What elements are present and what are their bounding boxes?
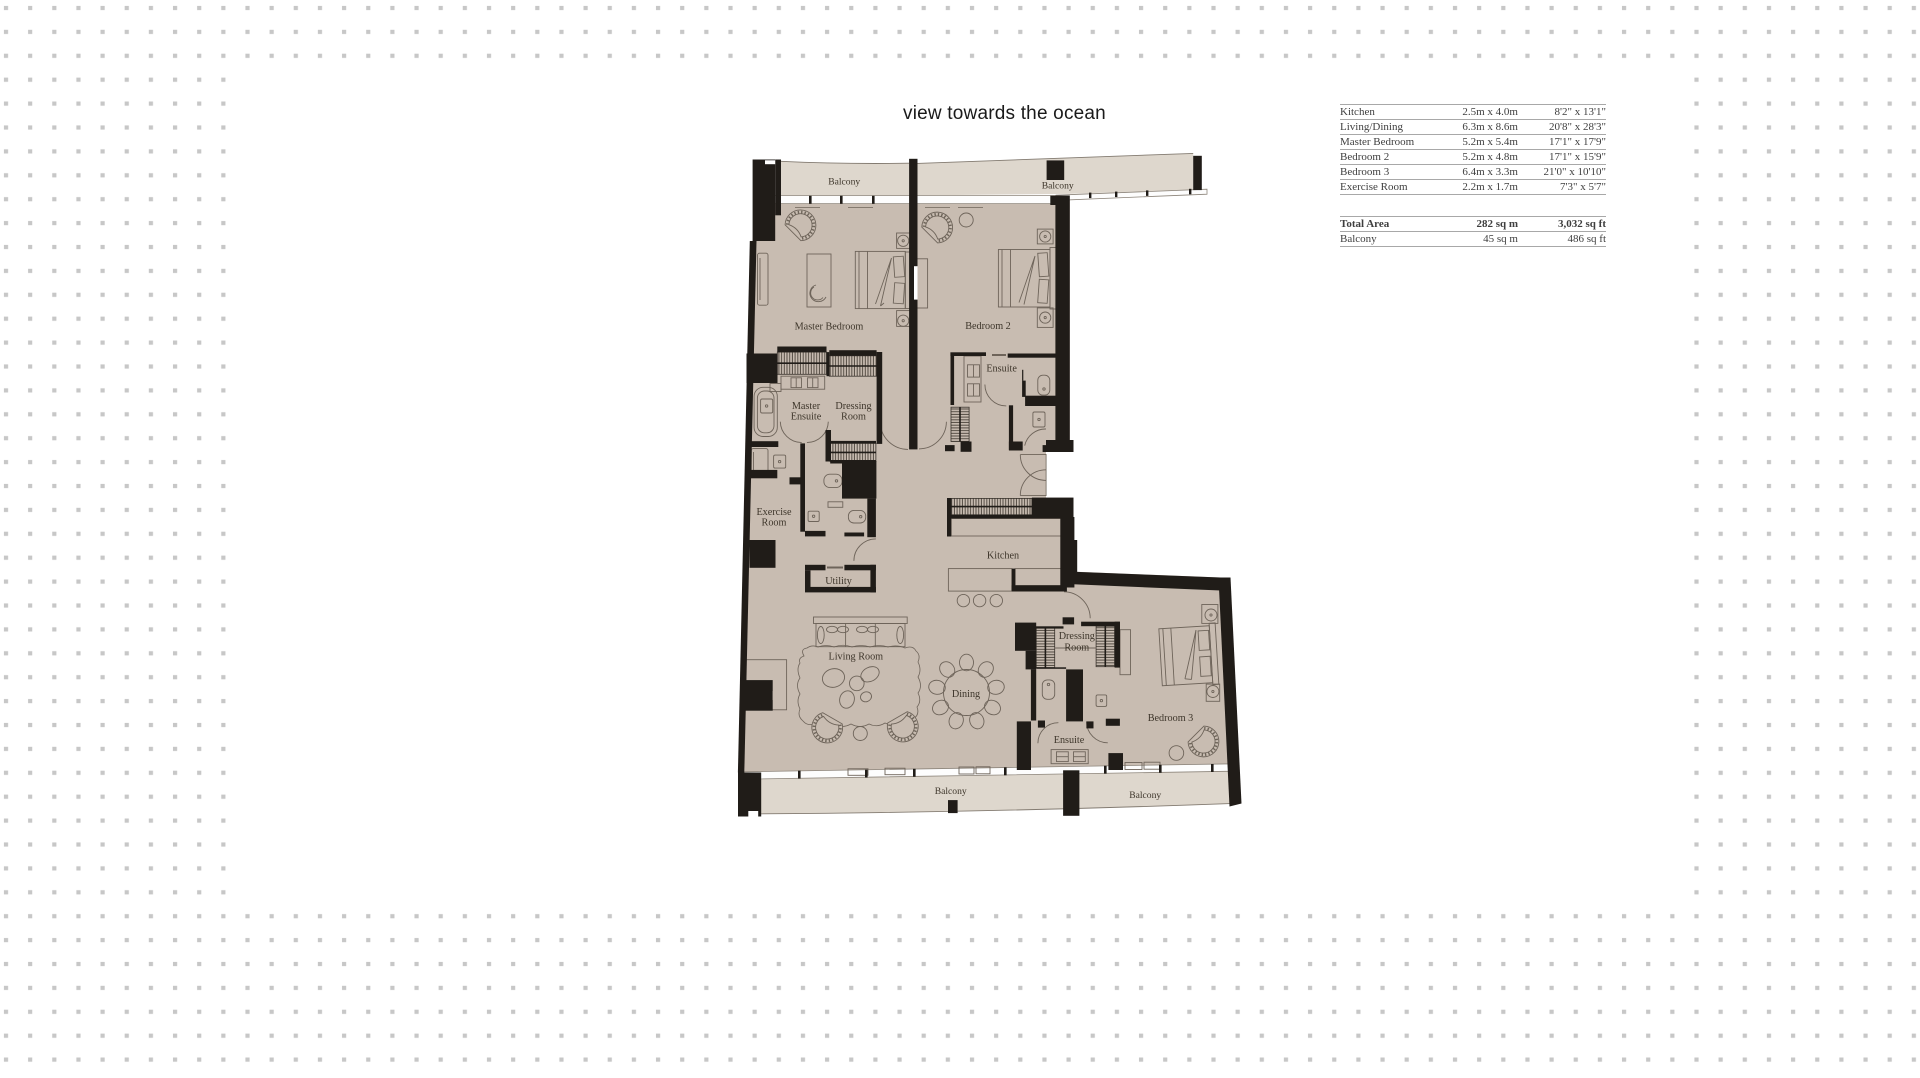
svg-text:Bedroom 3: Bedroom 3 xyxy=(1148,713,1194,724)
svg-text:Dressing: Dressing xyxy=(835,401,871,412)
svg-text:Utility: Utility xyxy=(825,576,853,587)
svg-text:Exercise: Exercise xyxy=(756,507,792,518)
svg-text:Ensuite: Ensuite xyxy=(986,364,1017,375)
svg-text:Dining: Dining xyxy=(952,689,980,700)
svg-text:Kitchen: Kitchen xyxy=(987,551,1019,562)
svg-text:Master Bedroom: Master Bedroom xyxy=(795,322,864,333)
svg-text:Balcony: Balcony xyxy=(828,177,860,188)
svg-text:Balcony: Balcony xyxy=(1042,181,1074,192)
svg-text:Living Room: Living Room xyxy=(828,652,883,663)
svg-text:Ensuite: Ensuite xyxy=(791,412,822,423)
svg-text:Room: Room xyxy=(1064,643,1089,654)
svg-text:Bedroom 2: Bedroom 2 xyxy=(965,321,1011,332)
svg-text:Master: Master xyxy=(792,401,821,412)
svg-text:Balcony: Balcony xyxy=(1129,790,1161,801)
svg-text:Ensuite: Ensuite xyxy=(1054,735,1085,746)
svg-text:Room: Room xyxy=(762,518,787,529)
svg-text:Room: Room xyxy=(841,412,866,423)
svg-text:Balcony: Balcony xyxy=(935,786,967,797)
svg-text:Dressing: Dressing xyxy=(1059,631,1095,642)
